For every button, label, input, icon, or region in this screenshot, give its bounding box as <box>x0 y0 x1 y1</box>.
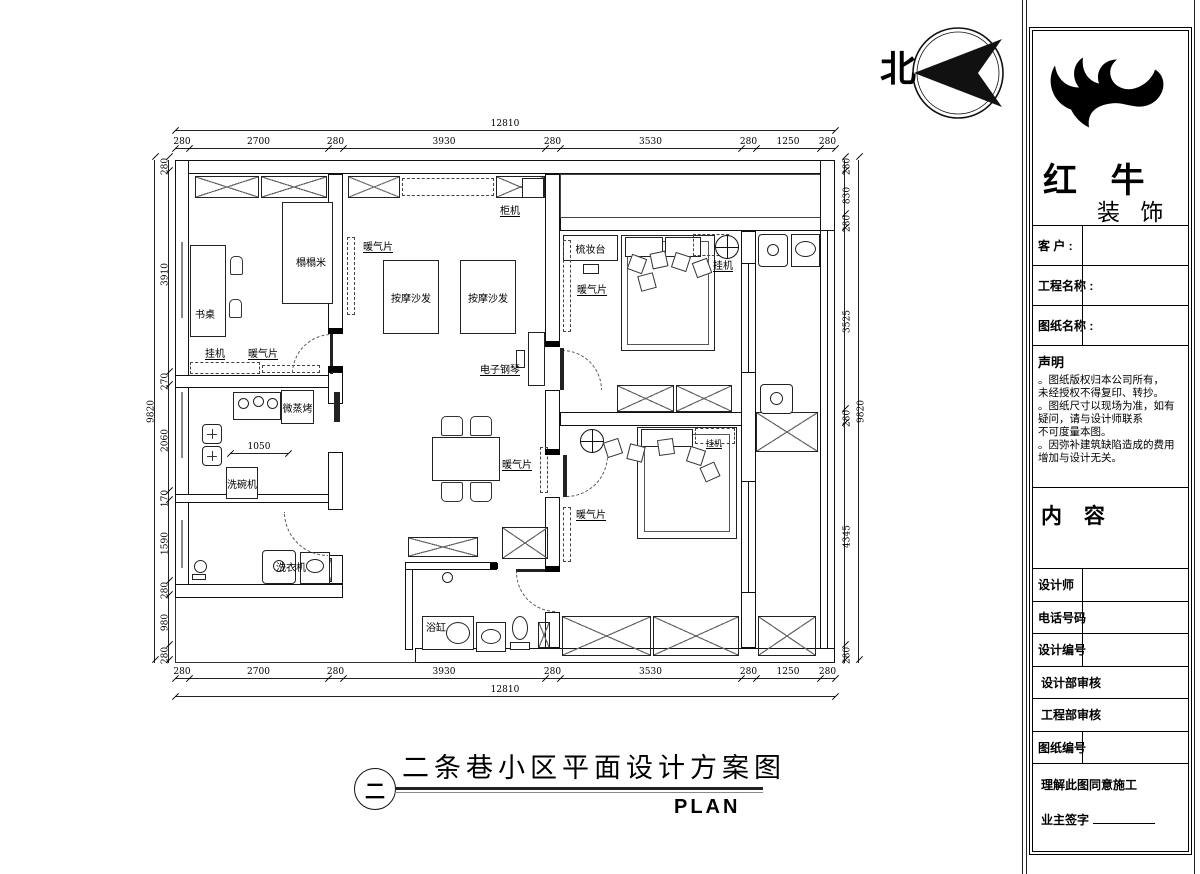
door-arc <box>516 572 556 612</box>
radiator-label: 暖气片 <box>502 460 532 471</box>
tatami-label: 榻榻米 <box>296 258 326 269</box>
oven-label: 微蒸烤 <box>283 400 313 415</box>
radiator-label: 暖气片 <box>363 242 393 253</box>
burner-icon <box>267 398 278 409</box>
dim-chain-kitchen-counter: 1050 <box>230 453 288 454</box>
wall <box>175 584 343 598</box>
wardrobe-xbox <box>562 616 651 656</box>
plan-subtitle: PLAN <box>674 796 740 819</box>
wall <box>545 390 560 455</box>
radiator-label: 暖气片 <box>577 285 607 296</box>
door-jamb <box>490 563 498 569</box>
wall <box>405 562 497 570</box>
piano-label: 电子钢琴 <box>480 365 520 376</box>
field-row-drawing: 图纸名称 : <box>1033 306 1188 346</box>
floor-plan: 12810 2802700280393028035302801250280 28… <box>150 122 875 727</box>
cabinet-dashed <box>402 178 494 196</box>
field-label: 工程名称 : <box>1033 266 1083 305</box>
balcony-cabinet-xbox <box>758 616 816 656</box>
sink-basin-icon <box>481 629 501 644</box>
chair <box>229 299 242 318</box>
shoe-cabinet-xbox <box>502 527 548 559</box>
statement-item: 。因弥补建筑缺陷造成的费用 增加与设计无关。 <box>1038 439 1183 465</box>
wall-ac-icon <box>715 235 739 259</box>
wardrobe-xbox <box>676 385 732 412</box>
window-band <box>175 392 189 458</box>
tatami-mat <box>282 202 333 304</box>
door-leaf <box>334 392 340 422</box>
window-band <box>741 482 756 592</box>
wall-ac-dashed <box>190 362 260 374</box>
north-label: 北 <box>880 40 916 92</box>
row-label: 设计师 <box>1033 569 1083 601</box>
signature-section: 理解此图同意施工 业主签字 <box>1033 764 1188 852</box>
wall-ac-label: 挂机 <box>713 261 733 272</box>
field-row-project: 工程名称 : <box>1033 266 1188 306</box>
row-label: 设计编号 <box>1033 634 1083 666</box>
dim-chain-bottom-segments: 2802700280393028035302801250280 <box>175 678 835 679</box>
toilet-tank <box>192 574 206 580</box>
radiator-label: 暖气片 <box>576 510 606 521</box>
north-arrow: 北 <box>878 18 1018 128</box>
brand-logo-section: 红 牛 装 饰 <box>1033 31 1188 226</box>
wall <box>175 160 835 174</box>
window-band <box>175 242 189 318</box>
dim-chain-width-total-bottom: 12810 <box>175 696 835 697</box>
row-label: 电话号码 <box>1033 602 1083 634</box>
wall <box>560 217 821 231</box>
toilet <box>194 560 207 573</box>
desk-label: 书桌 <box>195 310 215 321</box>
wardrobe-xbox <box>195 176 259 198</box>
wardrobe-xbox <box>261 176 327 198</box>
title-rule-thin <box>395 792 763 793</box>
stool <box>583 264 599 274</box>
bull-logo-icon <box>1041 37 1181 149</box>
wardrobe-xbox <box>348 176 400 198</box>
row-drawing-number: 图纸编号 <box>1033 732 1188 765</box>
shoe-cabinet-xbox <box>408 537 478 557</box>
wardrobe-xbox <box>617 385 674 412</box>
dishwasher-label: 洗碗机 <box>227 476 257 491</box>
washer-door-icon <box>767 244 779 256</box>
signature-line <box>1093 812 1155 824</box>
wall <box>175 494 343 503</box>
dining-table <box>432 437 500 481</box>
brand-name-2: 装 饰 <box>1097 193 1170 227</box>
chair <box>441 416 463 436</box>
door-arc <box>292 334 332 374</box>
chair <box>470 416 492 436</box>
chair <box>230 256 243 275</box>
drawing-title: 二条巷小区平面设计方案图 <box>402 746 786 785</box>
wall <box>820 160 835 231</box>
statement-item: 。图纸尺寸以现场为准，如有 疑问，请与设计师联系 不可度量本图。 <box>1038 400 1183 439</box>
window-band <box>741 264 756 372</box>
radiator <box>347 237 355 315</box>
shower-head-icon <box>442 572 453 583</box>
row-phone: 电话号码 <box>1033 602 1188 635</box>
washer-door-icon <box>770 392 783 405</box>
wall <box>560 412 756 426</box>
content-section: 内 容 <box>1033 488 1188 569</box>
wall <box>545 174 560 347</box>
row-label: 设计部审核 <box>1033 667 1101 699</box>
outline-line <box>175 662 417 663</box>
pillow <box>650 251 669 270</box>
kitchen-sink <box>202 446 222 466</box>
door-arc <box>562 350 602 390</box>
door-arc <box>566 455 608 497</box>
wall <box>175 375 343 388</box>
field-row-customer: 客 户 : <box>1033 226 1188 266</box>
oven: 微蒸烤 <box>281 390 314 424</box>
statement-item: 。图纸版权归本公司所有， 未经授权不得复印、转抄。 <box>1038 374 1183 400</box>
dim-chain-right-segments: 28083028035252804345280 <box>844 160 845 663</box>
field-label: 客 户 : <box>1033 226 1083 265</box>
drawing-title-group: 二条巷小区平面设计方案图 二 PLAN <box>338 740 788 826</box>
wall <box>328 452 343 510</box>
dim-chain-left-segments: 280391027020601701590280980280 <box>168 160 169 663</box>
dim-chain-width-total-top: 12810 <box>175 130 835 131</box>
row-label: 工程部审核 <box>1033 699 1101 731</box>
row-engineering-dept-review: 工程部审核 <box>1033 699 1188 732</box>
chair <box>441 482 463 502</box>
sink-basin-icon <box>306 559 324 573</box>
wall-ac-icon <box>580 429 604 453</box>
washing-machine-label: 洗衣机 <box>276 563 306 574</box>
owner-signature-label: 业主签字 <box>1041 811 1180 828</box>
window-band <box>820 231 835 648</box>
burner-icon <box>253 396 264 407</box>
title-block: 红 牛 装 饰 客 户 : 工程名称 : 图纸名称 : 声明 。图纸版权归本公司… <box>1032 30 1189 852</box>
door-leaf <box>563 455 567 497</box>
row-design-number: 设计编号 <box>1033 634 1188 667</box>
toilet <box>512 616 528 640</box>
door-jamb <box>545 566 560 572</box>
pillow <box>657 438 675 456</box>
wall-ac-label: 挂机 <box>205 349 225 360</box>
wardrobe-xbox <box>653 616 739 656</box>
drawing-sheet: 12810 2802700280393028035302801250280 28… <box>0 0 1200 874</box>
bathtub-basin-icon <box>446 622 470 644</box>
sink-basin-icon <box>795 241 816 257</box>
cabinet-ac-label: 柜机 <box>500 206 520 217</box>
dim-chain-height-total-right: 9820 <box>858 160 859 663</box>
desk <box>190 245 226 337</box>
outline-line <box>175 598 176 663</box>
radiator-label: 暖气片 <box>248 349 278 360</box>
dressing-table-label: 梳妆台 <box>576 241 606 256</box>
row-designer: 设计师 <box>1033 569 1188 602</box>
chair <box>470 482 492 502</box>
piano <box>528 332 545 386</box>
radiator <box>563 240 571 332</box>
door-jamb <box>328 366 343 372</box>
window-band <box>175 520 189 568</box>
dim-chain-height-total-left: 9820 <box>154 160 155 663</box>
massage-sofa: 按摩沙发 <box>460 260 516 334</box>
row-label: 图纸编号 <box>1033 732 1083 764</box>
massage-sofa-label: 按摩沙发 <box>391 290 431 305</box>
wall <box>741 231 756 264</box>
agreement-text: 理解此图同意施工 <box>1041 776 1180 793</box>
wall <box>741 372 756 482</box>
wall <box>741 592 756 648</box>
door-jamb <box>545 341 560 347</box>
owner-signature-text: 业主签字 <box>1041 813 1089 827</box>
cabinet-xbox <box>538 622 550 648</box>
door-leaf <box>560 348 564 390</box>
statement-section: 声明 。图纸版权归本公司所有， 未经授权不得复印、转抄。 。图纸尺寸以现场为准，… <box>1033 346 1188 488</box>
statement-heading: 声明 <box>1038 352 1183 371</box>
terrace-outline <box>560 174 821 218</box>
sheet-border-line <box>1022 0 1023 874</box>
kitchen-sink <box>202 424 222 444</box>
dishwasher: 洗碗机 <box>226 467 258 499</box>
balcony-cabinet-xbox <box>756 412 818 452</box>
toilet-tank <box>510 642 530 650</box>
door-jamb <box>328 328 343 334</box>
dressing-table: 梳妆台 <box>563 235 618 261</box>
wall <box>405 562 413 650</box>
door-jamb <box>545 449 560 455</box>
bathtub-label: 浴缸 <box>426 623 446 634</box>
cabinet-ac-unit <box>522 178 544 198</box>
massage-sofa: 按摩沙发 <box>383 260 439 334</box>
massage-sofa-label: 按摩沙发 <box>468 290 508 305</box>
dim-chain-top-segments: 2802700280393028035302801250280 <box>175 148 835 149</box>
sheet-border-line <box>1194 0 1195 874</box>
title-rule <box>395 787 763 790</box>
field-label: 图纸名称 : <box>1033 306 1083 345</box>
row-design-dept-review: 设计部审核 <box>1033 667 1188 700</box>
sheet-border-line <box>1026 0 1027 874</box>
burner-icon <box>238 398 249 409</box>
wall-ac-label: 挂机 <box>706 438 722 449</box>
radiator <box>563 507 571 562</box>
title-symbol: 二 <box>354 768 396 810</box>
